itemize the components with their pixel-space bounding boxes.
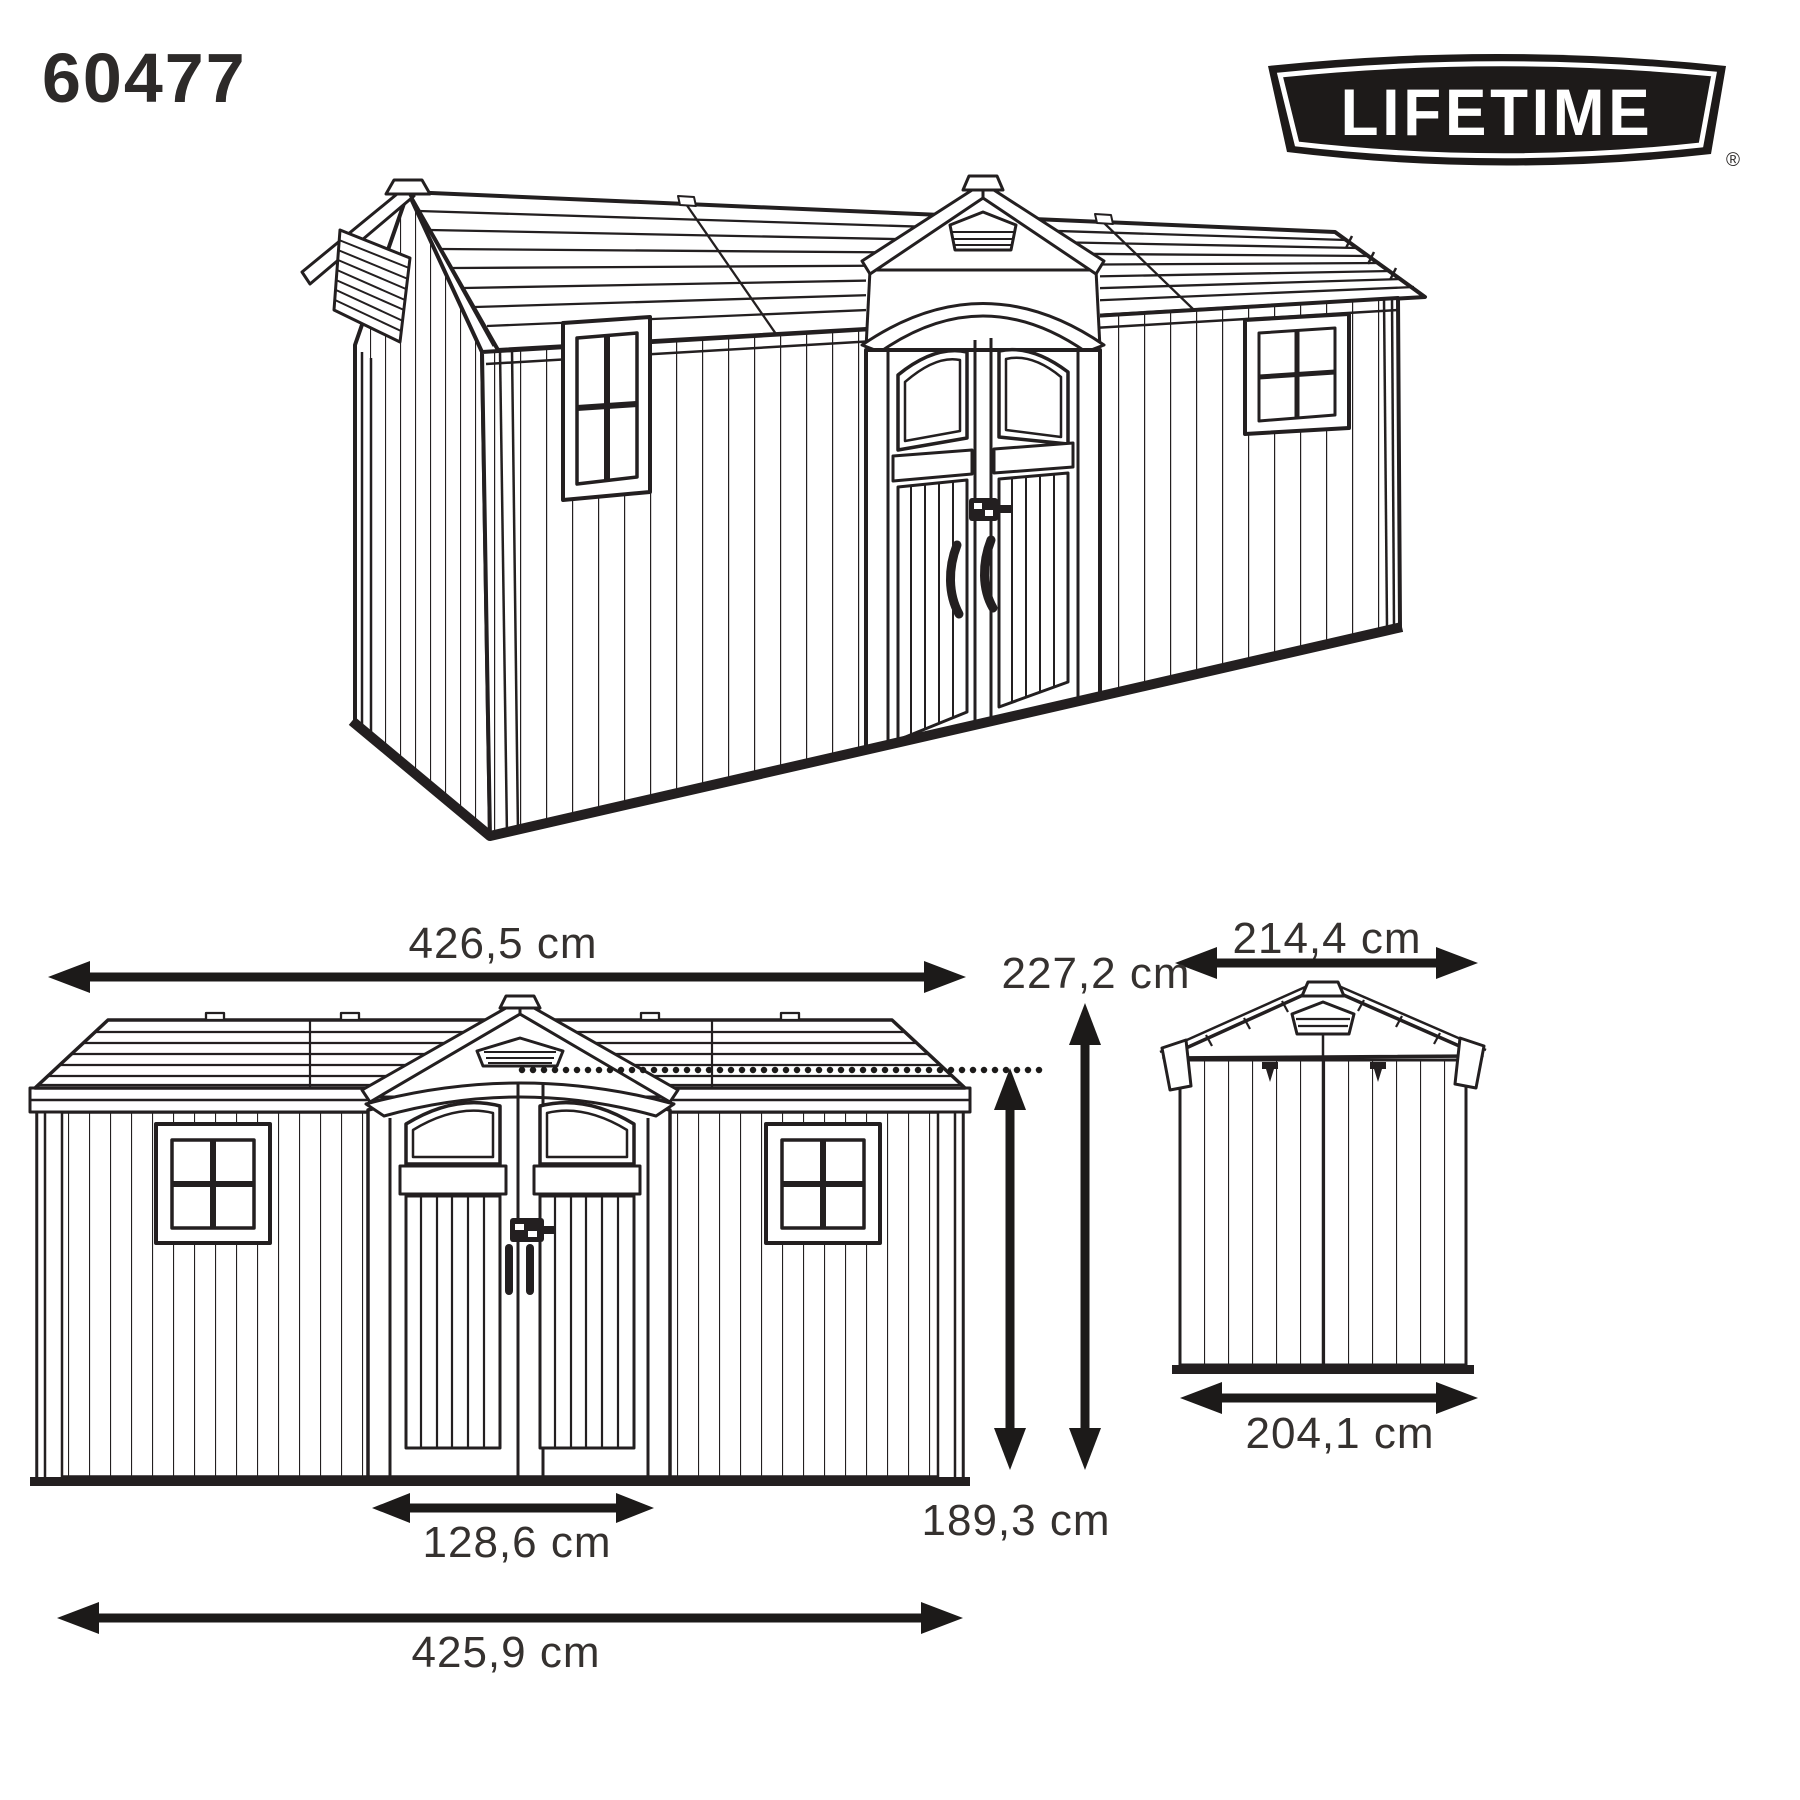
dim-label-total-height: 227,2 cm: [1002, 949, 1191, 999]
window-front-right-3d: [1245, 314, 1349, 434]
front-base-trim: [30, 1477, 970, 1486]
shed-diagram: [0, 0, 1800, 1800]
window-front-left-3d: [563, 317, 650, 500]
perspective-view: [302, 176, 1425, 838]
dim-label-width-bottom: 425,9 cm: [412, 1628, 601, 1678]
dim-label-side-base-width: 204,1 cm: [1246, 1409, 1435, 1459]
side-base-trim: [1172, 1365, 1474, 1374]
front-window-right: [766, 1124, 880, 1243]
dim-label-width-top: 426,5 cm: [409, 919, 598, 969]
registered-trademark-icon: ®: [1726, 150, 1740, 172]
diagram-canvas: 60477 LIFETIME ® 426,5 cm 227,2 cm 214,4…: [0, 0, 1800, 1800]
dim-label-side-roof-width: 214,4 cm: [1233, 914, 1422, 964]
side-elevation: [1160, 982, 1486, 1374]
door-dormer-3d: [862, 176, 1104, 352]
dim-label-eave-height: 189,3 cm: [922, 1496, 1111, 1546]
model-number: 60477: [42, 38, 247, 118]
dim-arrow-total-height: [1069, 1003, 1101, 1470]
front-doors: [366, 1082, 674, 1477]
dim-arrow-eave-height: [994, 1068, 1026, 1470]
lifetime-logo-text: LIFETIME: [1341, 74, 1654, 150]
dim-label-door-width: 128,6 cm: [423, 1518, 612, 1568]
front-window-left: [156, 1124, 270, 1243]
double-doors-3d: [866, 338, 1100, 751]
